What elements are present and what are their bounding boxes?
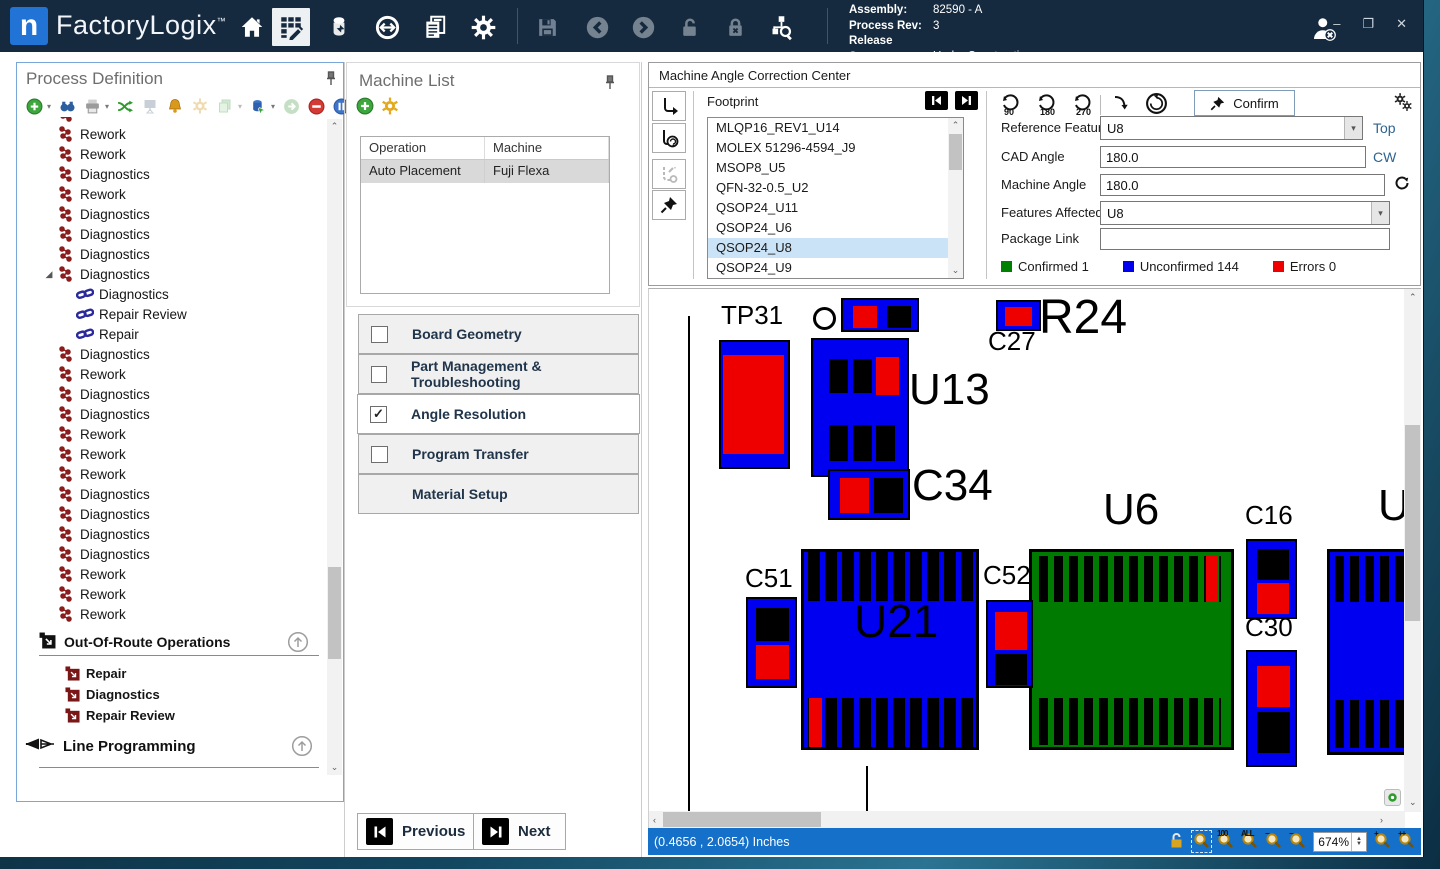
component-label-c30: C30 xyxy=(1245,614,1293,640)
tree-item-rework[interactable]: Rework xyxy=(18,604,326,624)
tree-scrollbar[interactable]: ⌃ ⌄ xyxy=(327,119,342,775)
footprint-scrollbar[interactable]: ⌃ ⌄ xyxy=(948,118,963,278)
separator xyxy=(39,767,319,768)
package-link-label: Package Link xyxy=(1001,231,1079,246)
pad xyxy=(840,478,869,513)
scroll-up-icon[interactable]: ⌃ xyxy=(1409,292,1417,303)
operation-icon xyxy=(57,386,75,402)
fiducial-ring xyxy=(813,307,836,330)
tree-item-diagnostics[interactable]: Diagnostics xyxy=(18,484,326,504)
footprint-item-qsop24_u9[interactable]: QSOP24_U9 xyxy=(708,258,948,278)
pad xyxy=(829,425,848,461)
board-icon xyxy=(141,97,159,115)
oor-item-diagnostics[interactable]: Diagnostics xyxy=(63,684,175,705)
print-caret-icon[interactable]: ▾ xyxy=(105,102,109,111)
operation-icon xyxy=(57,486,75,502)
tree-item-label: Repair xyxy=(99,327,139,342)
title-bar: n FactoryLogix™ xyxy=(0,0,1423,52)
last-footprint-button[interactable] xyxy=(955,91,978,110)
rotate-270-icon[interactable]: 270 xyxy=(1069,90,1099,116)
step-label: Material Setup xyxy=(412,486,508,502)
cad-angle-label: CAD Angle xyxy=(1001,149,1065,164)
pad xyxy=(756,645,789,679)
footprint-item-mlqp16_rev1_u14[interactable]: MLQP16_REV1_U14 xyxy=(708,118,948,138)
pad xyxy=(723,355,784,454)
out-of-route-icon xyxy=(39,632,56,652)
zoom-in-icon[interactable]: + xyxy=(1374,832,1391,851)
pad xyxy=(1257,583,1289,614)
pad xyxy=(876,425,895,461)
operation-icon xyxy=(57,266,75,282)
home-icon[interactable] xyxy=(233,8,271,46)
operation-icon xyxy=(57,186,75,202)
component-label-c27: C27 xyxy=(988,328,1036,354)
viewer-horizontal-scrollbar[interactable]: ‹ › xyxy=(649,811,1405,828)
pad xyxy=(1206,556,1217,602)
rotate-90-icon[interactable]: 90 xyxy=(997,90,1027,116)
operation-icon xyxy=(57,126,75,142)
pad xyxy=(1005,307,1032,326)
zoom-out-icon[interactable]: − xyxy=(1265,832,1282,851)
cursor-coordinates: (0.4656 , 2.0654) Inches xyxy=(654,835,790,849)
separator xyxy=(39,655,319,656)
tree-item-label: Repair Review xyxy=(99,307,187,322)
add-operation-icon[interactable] xyxy=(25,97,43,115)
tree-item-diagnostics[interactable]: Diagnostics xyxy=(18,544,326,564)
settings-gear-icon[interactable] xyxy=(464,8,502,46)
legend-color-confirmed xyxy=(1001,261,1012,272)
save-icon[interactable] xyxy=(528,8,566,46)
scroll-down-icon[interactable]: ⌄ xyxy=(327,760,342,775)
machine-table-row[interactable]: Auto PlacementFuji Flexa xyxy=(361,160,609,183)
divider xyxy=(1100,95,1101,115)
promote-icon[interactable] xyxy=(291,735,313,757)
out-of-route-operation-icon xyxy=(63,687,81,702)
pcb-component-tp31[interactable] xyxy=(719,340,790,469)
pin-row xyxy=(1039,698,1221,745)
spinner-arrows-icon[interactable]: ▲▼ xyxy=(1351,833,1366,851)
footprint-label: Footprint xyxy=(707,94,758,109)
forward-icon[interactable] xyxy=(624,8,662,46)
stop-icon[interactable] xyxy=(307,97,325,115)
tree-item-diagnostics[interactable]: Diagnostics xyxy=(18,384,326,404)
tree-item-label: Rework xyxy=(80,447,126,462)
step-label: Part Management & Troubleshooting xyxy=(411,358,638,390)
process-definition-title: Process Definition xyxy=(26,69,163,89)
column-divider xyxy=(344,62,345,857)
pin-row xyxy=(808,552,974,601)
component-label-r24: R24 xyxy=(1039,294,1127,342)
features-affected-label: Features Affected xyxy=(1001,205,1103,220)
start-disabled-icon xyxy=(282,97,300,115)
tree-item-diagnostics[interactable]: Diagnostics xyxy=(18,504,326,524)
linked-operation-icon xyxy=(76,287,94,301)
tree-item-diagnostics[interactable]: Diagnostics xyxy=(18,524,326,544)
tree-item-label: Rework xyxy=(80,587,126,602)
footprint-item-qsop24_u11[interactable]: QSOP24_U11 xyxy=(708,198,948,218)
operation-icon xyxy=(57,166,75,182)
tree-item-label: Diagnostics xyxy=(80,167,150,182)
process-editor-icon[interactable] xyxy=(272,8,310,46)
delete-sync-icon[interactable] xyxy=(249,97,267,115)
svg-text:90: 90 xyxy=(1004,107,1014,116)
pad xyxy=(853,359,872,393)
operation-icon xyxy=(57,206,75,222)
pcb-component-c30[interactable] xyxy=(1246,650,1297,767)
pad xyxy=(829,359,848,393)
pad xyxy=(876,357,899,395)
tree-item-label: Rework xyxy=(80,607,126,622)
oor-item-label: Repair xyxy=(86,666,126,681)
zoom-level-value: 674% xyxy=(1314,835,1351,849)
tree-item-rework[interactable]: Rework xyxy=(18,364,326,384)
pad xyxy=(809,698,822,747)
operation-icon xyxy=(57,466,75,482)
scroll-up-icon[interactable]: ⌃ xyxy=(948,118,963,133)
brand-name: FactoryLogix™ xyxy=(56,10,226,41)
apply-pin-icon[interactable] xyxy=(652,190,686,220)
linked-operation-icon xyxy=(76,307,94,321)
tree-item-rework[interactable]: Rework xyxy=(18,144,326,164)
tree-item-diagnostics[interactable]: Diagnostics xyxy=(18,204,326,224)
add-machine-icon[interactable] xyxy=(356,97,374,120)
rotate-selected-icon[interactable] xyxy=(652,91,686,121)
assembly-value: 82590 - A xyxy=(933,4,982,16)
pad xyxy=(995,612,1027,650)
step-checkbox[interactable] xyxy=(371,326,388,343)
pin-row xyxy=(1335,556,1405,602)
footprint-item-qsop24_u8[interactable]: QSOP24_U8 xyxy=(708,238,948,258)
machine-list-title: Machine List xyxy=(359,71,454,91)
component-label-u: U xyxy=(1378,484,1405,528)
tree-item-rework[interactable]: Rework xyxy=(18,584,326,604)
unlock-icon[interactable] xyxy=(670,8,708,46)
tree-item-label: Rework xyxy=(80,147,126,162)
tree-item-diagnostics[interactable]: Diagnostics xyxy=(18,404,326,424)
scroll-left-icon[interactable]: ‹ xyxy=(653,815,656,825)
scroll-up-icon[interactable]: ⌃ xyxy=(327,119,342,134)
pcb-viewer: TP31U13C27R24C34U6C16C51U21C52C30U ⌃ ⌄ ‹… xyxy=(648,288,1421,828)
pad xyxy=(887,306,911,328)
out-of-route-items: RepairDiagnosticsRepair Review xyxy=(63,663,175,726)
tree-item-label: Rework xyxy=(80,127,126,142)
component-label-c51: C51 xyxy=(745,565,793,591)
previous-button[interactable]: Previous xyxy=(357,813,480,850)
rotation-direction-indicator: CW xyxy=(1373,149,1396,165)
pad xyxy=(756,608,789,641)
tree-item-label: Rework xyxy=(80,567,126,582)
machine-table: OperationMachine Auto PlacementFuji Flex… xyxy=(360,136,610,294)
legend-label: Unconfirmed 144 xyxy=(1140,259,1239,274)
tree-item-diagnostics[interactable]: Diagnostics xyxy=(18,344,326,364)
copy-caret-icon: ▾ xyxy=(238,102,242,111)
zoom-window-icon[interactable] xyxy=(1193,832,1210,851)
pcb-component[interactable] xyxy=(1327,549,1405,755)
tree-item-label: Rework xyxy=(80,467,126,482)
machine-angle-correction-panel: Machine Angle Correction Center Footprin… xyxy=(648,62,1421,286)
legend-label: Errors 0 xyxy=(1290,259,1336,274)
operation-icon xyxy=(57,226,75,242)
out-of-route-operation-icon xyxy=(63,666,81,681)
pin-row xyxy=(1335,700,1405,748)
tree-item-label: Diagnostics xyxy=(99,287,169,302)
column-header-operation[interactable]: Operation xyxy=(361,137,485,159)
scrollbar-thumb[interactable] xyxy=(663,812,821,827)
toolbar-divider xyxy=(827,8,828,44)
add-operation-caret-icon[interactable]: ▾ xyxy=(47,102,51,111)
pcb-canvas[interactable]: TP31U13C27R24C34U6C16C51U21C52C30U xyxy=(651,292,1405,812)
tree-item[interactable] xyxy=(18,117,326,124)
tree-item-label: Rework xyxy=(80,187,126,202)
pan-lock-icon[interactable] xyxy=(1169,832,1186,851)
board-outline-line xyxy=(866,766,868,812)
process-definition-panel: Process Definition ▾ ▾ xyxy=(16,62,344,802)
tree-item-label: Diagnostics xyxy=(80,527,150,542)
features-affected-dropdown[interactable]: U8 ▾ xyxy=(1100,201,1390,225)
rotate-feature-icon[interactable] xyxy=(652,123,686,153)
tree-item-rework[interactable]: Rework xyxy=(18,444,326,464)
oor-item-label: Diagnostics xyxy=(86,687,160,702)
process-audit-icon[interactable] xyxy=(762,8,800,46)
step-checkbox[interactable] xyxy=(371,446,388,463)
process-rev-value: 3 xyxy=(933,20,939,32)
component-label-c16: C16 xyxy=(1245,502,1293,528)
pcb-component-u6[interactable] xyxy=(1029,549,1234,750)
tree-item-label: Diagnostics xyxy=(80,267,150,282)
tree-item-diagnostics[interactable]: Diagnostics xyxy=(18,164,326,184)
wizard-step-part-management-troubleshooting[interactable]: Part Management & Troubleshooting xyxy=(358,354,639,394)
chevron-down-icon[interactable]: ▾ xyxy=(1371,202,1389,224)
footprint-list: MLQP16_REV1_U14MOLEX 51296-4594_J9MSOP8_… xyxy=(707,117,964,279)
tree-item-rework[interactable]: Rework xyxy=(18,124,326,144)
step-checkbox[interactable]: ✓ xyxy=(370,406,387,423)
operation-icon xyxy=(57,526,75,542)
bell-icon[interactable] xyxy=(166,97,184,115)
pad xyxy=(853,425,872,461)
tree-item-rework[interactable]: Rework xyxy=(18,184,326,204)
component-label-u21: U21 xyxy=(854,598,938,644)
step-label: Angle Resolution xyxy=(411,406,526,422)
operation-icon xyxy=(57,446,75,462)
divider xyxy=(986,91,987,279)
tree-item-rework[interactable]: Rework xyxy=(18,424,326,444)
correction-center-title: Machine Angle Correction Center xyxy=(659,68,851,83)
pin-panel-icon[interactable] xyxy=(604,75,616,90)
machine-angle-label: Machine Angle xyxy=(1001,177,1086,192)
component-label-tp31: TP31 xyxy=(721,302,783,328)
line-programming-header[interactable]: Line Programming xyxy=(25,735,331,757)
table-cell: Fuji Flexa xyxy=(485,160,609,183)
operation-icon xyxy=(57,346,75,362)
tree-item-label: Diagnostics xyxy=(80,347,150,362)
viewer-status-bar: (0.4656 , 2.0654) Inches 100ALL−− 674% ▲… xyxy=(648,828,1421,855)
tree-item-repair-review[interactable]: Repair Review xyxy=(18,304,326,324)
machine-list-panel: Machine List OperationMachine Auto Place… xyxy=(346,62,640,307)
oor-item-repair[interactable]: Repair xyxy=(63,663,175,684)
viewer-option-icon[interactable] xyxy=(1384,789,1401,806)
tree-item-diagnostics[interactable]: ◢Diagnostics xyxy=(18,264,326,284)
tree-item-label: Rework xyxy=(80,367,126,382)
reorder-icon[interactable] xyxy=(116,97,134,115)
dispatch-icon[interactable] xyxy=(368,8,406,46)
pcb-component-c51[interactable] xyxy=(746,597,797,688)
machine-settings-icon[interactable] xyxy=(381,97,399,120)
app-window: n FactoryLogix™ xyxy=(0,0,1424,857)
legend-color-errors xyxy=(1273,261,1284,272)
step-label: Board Geometry xyxy=(412,326,522,342)
operation-icon xyxy=(57,606,75,622)
oor-item-repair-review[interactable]: Repair Review xyxy=(63,705,175,726)
print-icon[interactable] xyxy=(83,97,101,115)
operation-icon xyxy=(57,246,75,262)
svg-text:180: 180 xyxy=(1040,107,1055,116)
documents-icon[interactable] xyxy=(416,8,454,46)
expander-slot[interactable]: ◢ xyxy=(41,269,57,280)
pcb-component-u21[interactable] xyxy=(801,549,979,750)
tree-item-diagnostics[interactable]: Diagnostics xyxy=(18,244,326,264)
pad xyxy=(1257,549,1289,580)
operation-icon xyxy=(57,406,75,422)
step-checkbox[interactable] xyxy=(371,366,387,383)
tree-item-label: Diagnostics xyxy=(80,227,150,242)
status-legend: Confirmed 1Unconfirmed 144Errors 0 xyxy=(1001,259,1364,274)
find-icon[interactable] xyxy=(58,97,76,115)
production-icon[interactable] xyxy=(320,8,358,46)
zoom-all-icon[interactable]: ALL xyxy=(1241,832,1258,851)
board-outline-line xyxy=(688,316,690,812)
rotate-link-disabled-icon xyxy=(652,159,686,189)
tree-item-label: Diagnostics xyxy=(80,207,150,222)
wizard-step-angle-resolution[interactable]: ✓Angle Resolution xyxy=(357,394,640,434)
component-label-u13: U13 xyxy=(909,368,990,412)
tree-item-diagnostics[interactable]: Diagnostics xyxy=(18,224,326,244)
table-cell: Auto Placement xyxy=(361,160,485,183)
side-indicator: Top xyxy=(1373,120,1396,136)
machine-table-header: OperationMachine xyxy=(361,137,609,160)
tree-item-diagnostics[interactable]: Diagnostics xyxy=(18,284,326,304)
process-toolbar: ▾ ▾ ▾ ▾ xyxy=(25,96,350,116)
scroll-right-icon[interactable]: › xyxy=(1380,815,1383,825)
oor-item-label: Repair Review xyxy=(86,708,175,723)
tree-item-label: Diagnostics xyxy=(80,247,150,262)
wizard-step-program-transfer[interactable]: Program Transfer xyxy=(358,434,639,474)
wizard-step-board-geometry[interactable]: Board Geometry xyxy=(358,314,639,354)
zoom-out-step-icon[interactable]: − xyxy=(1289,832,1306,851)
footprint-item-msop8_u5[interactable]: MSOP8_U5 xyxy=(708,158,948,178)
pcb-component-c34[interactable] xyxy=(828,469,910,520)
wizard-step-material-setup[interactable]: Material Setup xyxy=(358,474,639,514)
viewer-vertical-scrollbar[interactable]: ⌃ ⌄ xyxy=(1404,289,1421,812)
rotate-180-icon[interactable]: 180 xyxy=(1033,90,1063,116)
footprint-item-molex 51296-4594_j9[interactable]: MOLEX 51296-4594_J9 xyxy=(708,138,948,158)
operation-icon xyxy=(57,586,75,602)
machine-angle-input[interactable] xyxy=(1100,174,1385,196)
out-of-route-header[interactable]: Out-Of-Route Operations xyxy=(39,631,329,653)
pcb-component-u13[interactable] xyxy=(811,338,909,477)
component-label-u6: U6 xyxy=(1103,488,1159,532)
pad xyxy=(995,654,1027,685)
minimize-button[interactable]: – xyxy=(1333,16,1340,32)
operation-icon xyxy=(57,146,75,162)
separator xyxy=(649,87,1420,88)
tree-item-label: Diagnostics xyxy=(80,407,150,422)
delete-caret-icon[interactable]: ▾ xyxy=(271,102,275,111)
maximize-button[interactable]: ❐ xyxy=(1362,16,1374,32)
tree-item-label: Diagnostics xyxy=(80,547,150,562)
next-icon xyxy=(482,818,509,845)
column-header-machine[interactable]: Machine xyxy=(485,137,609,159)
scrollbar-thumb[interactable] xyxy=(328,567,341,659)
linked-operation-icon xyxy=(76,327,94,341)
pcb-component-c52[interactable] xyxy=(986,600,1033,688)
advanced-settings-gears-icon[interactable] xyxy=(1393,92,1413,117)
component-label-c52: C52 xyxy=(983,562,1031,588)
tree-item-rework[interactable]: Rework xyxy=(18,464,326,484)
desktop-background: n FactoryLogix™ xyxy=(0,0,1440,869)
close-button[interactable]: ✕ xyxy=(1396,16,1407,32)
cad-angle-input[interactable] xyxy=(1100,146,1366,168)
refresh-angle-icon[interactable] xyxy=(1392,173,1412,198)
pin-row xyxy=(1039,556,1221,602)
pcb-component-c16[interactable] xyxy=(1246,539,1297,619)
scroll-down-icon[interactable]: ⌄ xyxy=(1409,797,1417,808)
operation-icon xyxy=(57,566,75,582)
confirm-button[interactable]: Confirm xyxy=(1194,90,1295,116)
copy-disabled-icon xyxy=(216,97,234,115)
zoom-100-icon[interactable]: 100 xyxy=(1217,832,1234,851)
chevron-down-icon[interactable]: ▾ xyxy=(1344,117,1362,139)
legend-label: Confirmed 1 xyxy=(1018,259,1089,274)
tree-item-rework[interactable]: Rework xyxy=(18,564,326,584)
package-link-input[interactable] xyxy=(1100,228,1390,250)
previous-icon xyxy=(366,818,393,845)
zoom-in-step-icon[interactable]: ++ xyxy=(1398,832,1415,851)
first-footprint-button[interactable] xyxy=(925,91,948,110)
pad xyxy=(853,306,877,328)
factorylogix-logo-icon: n xyxy=(10,7,48,45)
footprint-item-qfn-32-0.5_u2[interactable]: QFN-32-0.5_U2 xyxy=(708,178,948,198)
operation-icon xyxy=(57,546,75,562)
pin-row xyxy=(808,698,974,747)
pcb-component[interactable] xyxy=(841,298,919,332)
promote-icon[interactable] xyxy=(287,631,309,653)
footprint-item-qsop24_u6[interactable]: QSOP24_U6 xyxy=(708,218,948,238)
tree-item-label: Diagnostics xyxy=(80,507,150,522)
tree-item-repair[interactable]: Repair xyxy=(18,324,326,344)
pin-panel-icon[interactable] xyxy=(325,71,337,86)
next-button[interactable]: Next xyxy=(473,813,566,850)
process-tree: ReworkReworkDiagnosticsReworkDiagnostics… xyxy=(18,117,326,633)
out-of-route-operation-icon xyxy=(63,708,81,723)
operation-icon xyxy=(57,117,75,122)
tree-item-label: Diagnostics xyxy=(80,387,150,402)
pad xyxy=(1257,666,1290,707)
scrollbar-thumb[interactable] xyxy=(949,134,962,170)
scrollbar-thumb[interactable] xyxy=(1405,425,1420,621)
pad xyxy=(874,478,903,513)
back-icon[interactable] xyxy=(578,8,616,46)
gear-disabled-icon xyxy=(191,97,209,115)
pad xyxy=(1257,712,1290,753)
divider xyxy=(693,91,694,279)
line-programming-icon xyxy=(25,735,55,757)
column-divider xyxy=(641,62,642,857)
reference-feature-dropdown[interactable]: U8 ▾ xyxy=(1100,116,1363,140)
zoom-level-spinner[interactable]: 674% ▲▼ xyxy=(1313,832,1367,852)
lock-revision-icon[interactable] xyxy=(716,8,754,46)
scroll-down-icon[interactable]: ⌄ xyxy=(948,263,963,278)
legend-color-unconfirmed xyxy=(1123,261,1134,272)
